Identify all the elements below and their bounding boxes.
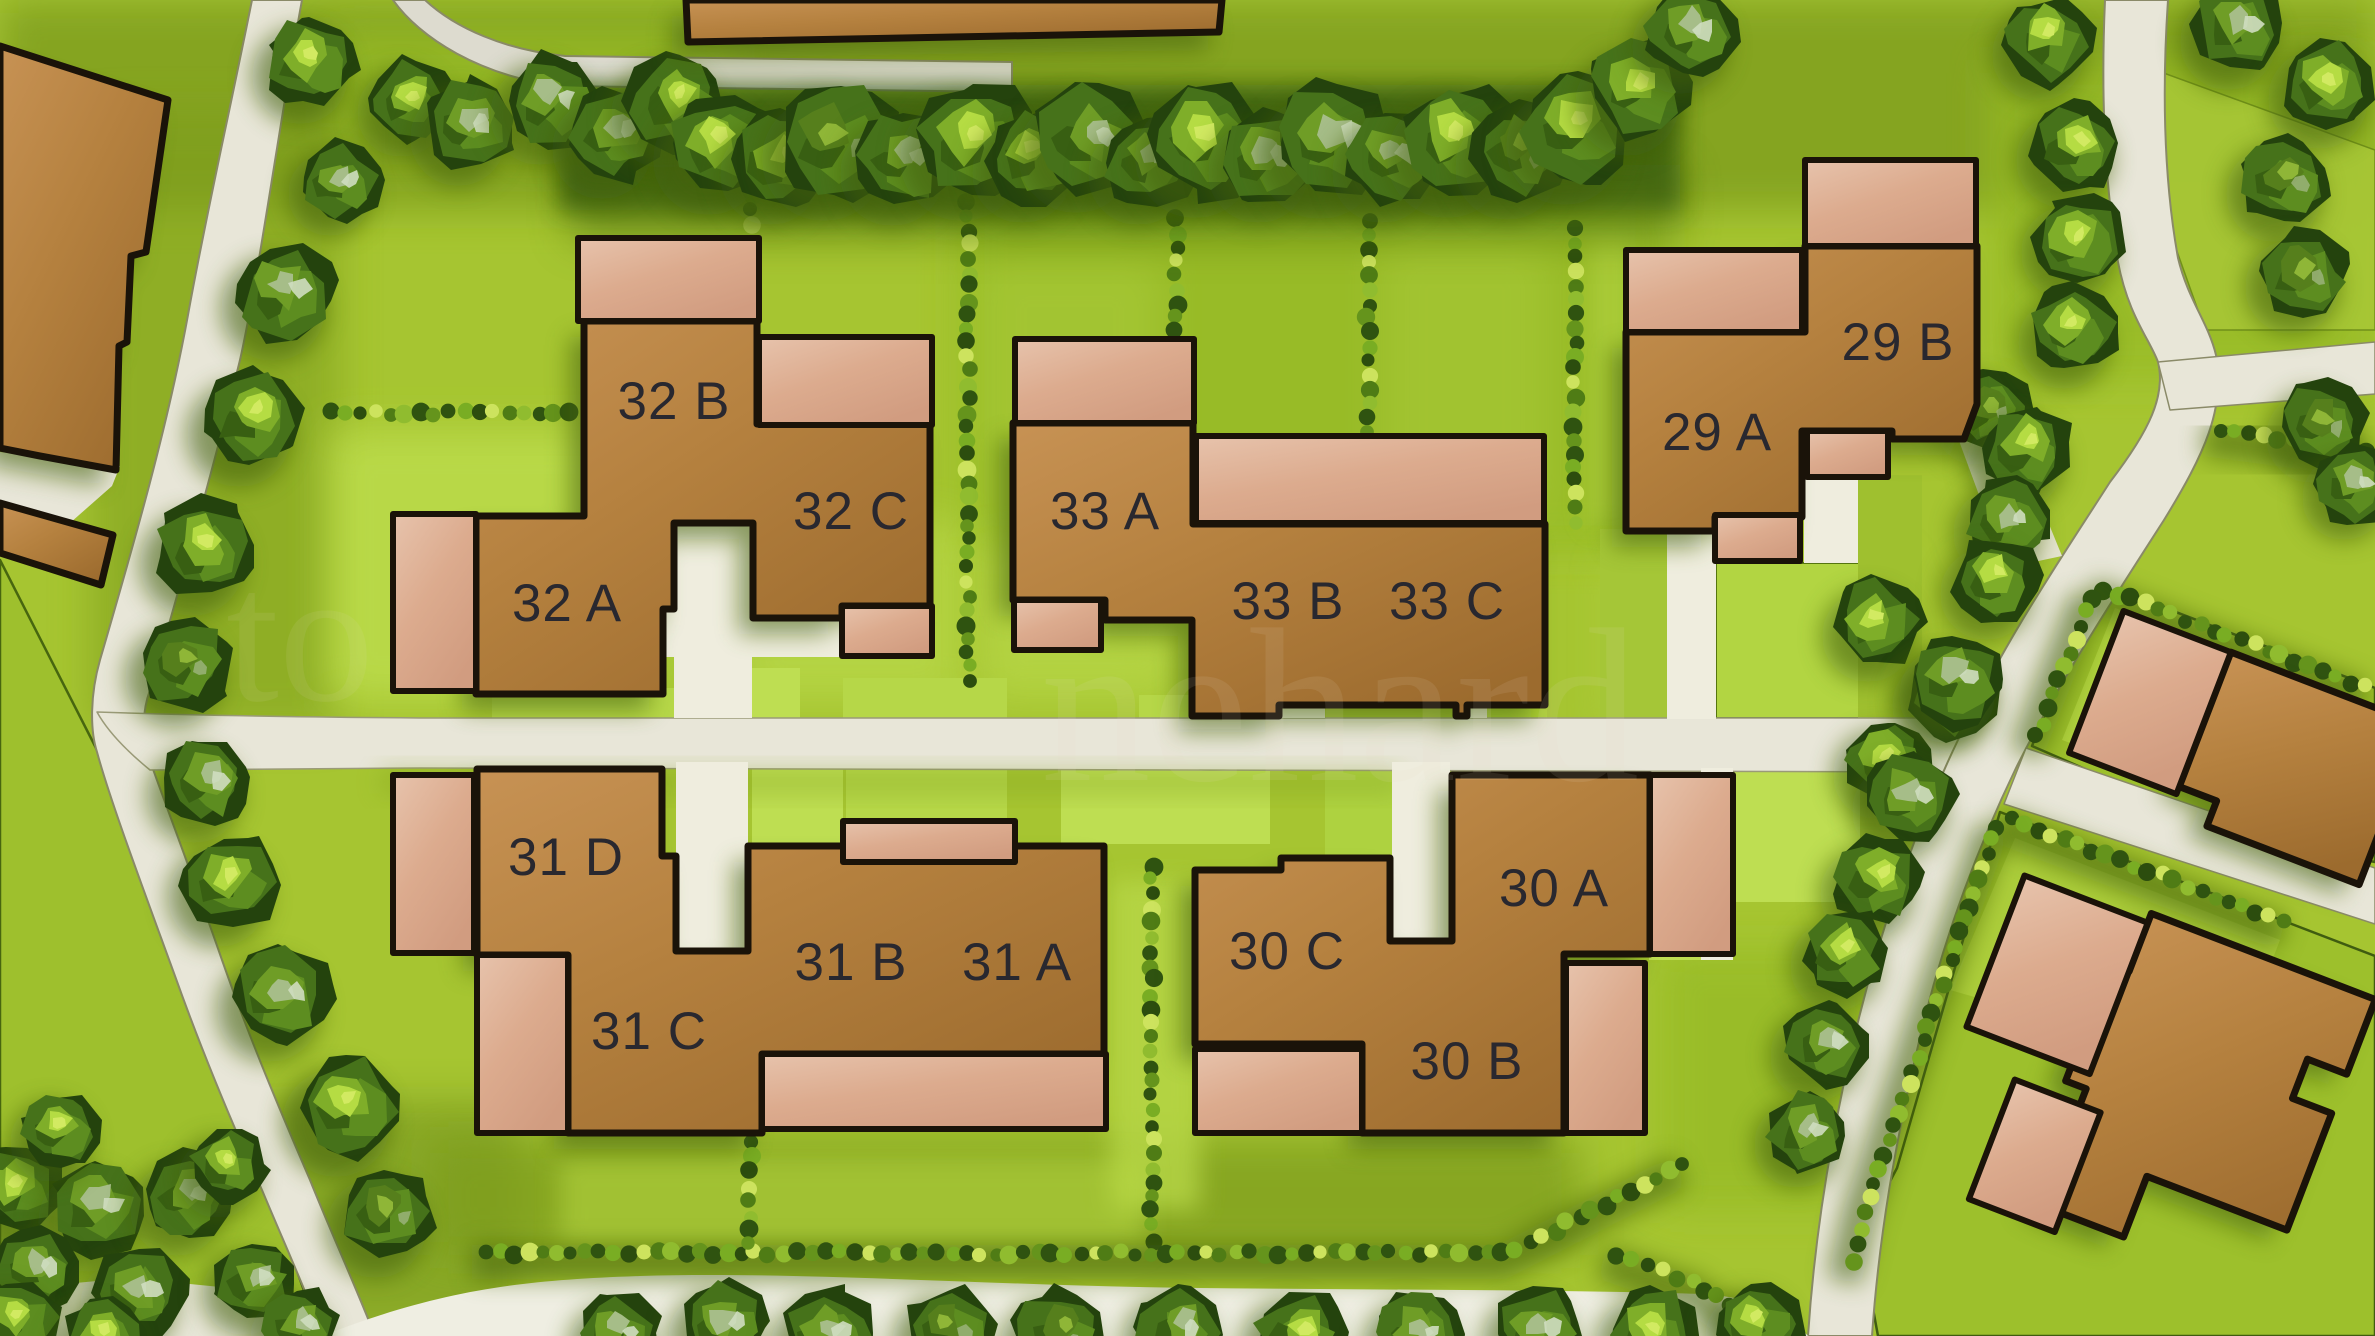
svg-text:30 C: 30 C (1229, 922, 1345, 981)
svg-text:31 D: 31 D (508, 828, 624, 887)
svg-text:32 C: 32 C (793, 482, 909, 541)
svg-text:29 B: 29 B (1841, 313, 1954, 372)
svg-text:to: to (226, 532, 374, 742)
svg-text:30 A: 30 A (1499, 859, 1609, 918)
svg-text:31 C: 31 C (591, 1002, 707, 1061)
svg-text:29 A: 29 A (1662, 403, 1772, 462)
svg-text:nehard: nehard (1041, 584, 1640, 828)
svg-text:32 B: 32 B (617, 372, 730, 431)
svg-text:30 B: 30 B (1410, 1032, 1523, 1091)
svg-text:31 B: 31 B (794, 933, 907, 992)
svg-text:33 A: 33 A (1050, 482, 1160, 541)
svg-text:31 A: 31 A (962, 933, 1072, 992)
svg-text:32 A: 32 A (512, 574, 622, 633)
